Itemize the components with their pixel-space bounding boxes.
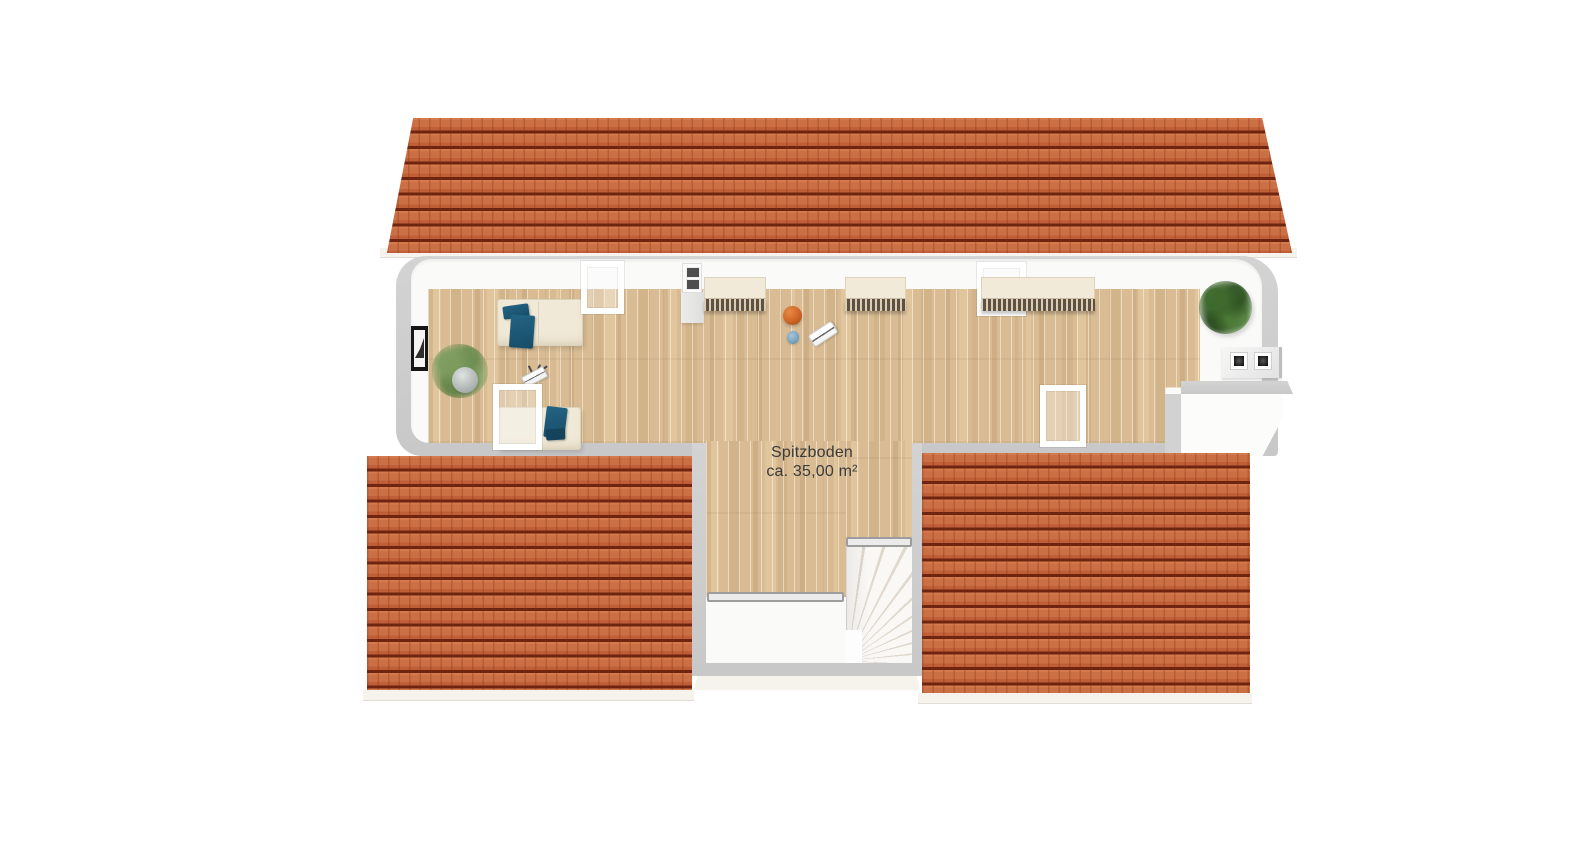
picture-frame [411, 326, 428, 371]
sideboard-top [981, 277, 1095, 299]
chimney-double-flue [1222, 347, 1282, 378]
picture-frame-art [415, 338, 424, 358]
sideboard-front [845, 299, 906, 311]
potted-plant-right [1199, 281, 1252, 334]
floorplan-canvas: Spitzboden ca. 35,00 m² [0, 0, 1586, 855]
sofa-seat-divider [538, 302, 539, 343]
roof-bottom-left [367, 456, 692, 690]
roof-bottom-right-eave [918, 693, 1252, 704]
notch-wall-top [1181, 381, 1293, 394]
sideboard-front [981, 299, 1095, 311]
sideboard-front [704, 299, 766, 311]
roof-bottom-right [922, 453, 1250, 693]
flue-opening [1254, 352, 1272, 370]
sideboard-top [845, 277, 906, 299]
notch-wall-edge [1165, 394, 1181, 456]
sideboard-right [981, 277, 1095, 311]
stair-landing-notch [846, 630, 862, 663]
skylight-window-1 [581, 261, 624, 314]
skylight-window-4 [1040, 385, 1086, 447]
chimney-small [682, 263, 702, 293]
stairwell-eave [694, 676, 920, 690]
room-label: Spitzboden ca. 35,00 m² [712, 444, 912, 482]
stair-railing-right [846, 537, 912, 547]
sideboard-left [704, 277, 766, 311]
roof-top [387, 118, 1292, 253]
skylight-window-2 [493, 384, 542, 450]
chimney-small-pillar [681, 292, 704, 323]
basketball [783, 306, 802, 325]
roof-bottom-left-eave [363, 690, 694, 701]
room-area: ca. 35,00 m² [712, 463, 912, 482]
chimney-small-flue [686, 279, 700, 290]
sofa-lower-pillow [546, 428, 566, 440]
sideboard-top [704, 277, 766, 299]
sofa-upper-blanket [509, 314, 535, 349]
sideboard-middle [845, 277, 906, 311]
flue-hole [1258, 356, 1268, 366]
blue-ball [787, 331, 799, 344]
flue-hole [1234, 356, 1244, 366]
stair-railing-left [707, 592, 844, 602]
picture-frame-mat [414, 330, 425, 367]
room-name: Spitzboden [712, 444, 912, 463]
potted-plant-left-pot [452, 367, 478, 393]
chimney-small-flue [686, 267, 700, 278]
flue-opening [1230, 352, 1248, 370]
